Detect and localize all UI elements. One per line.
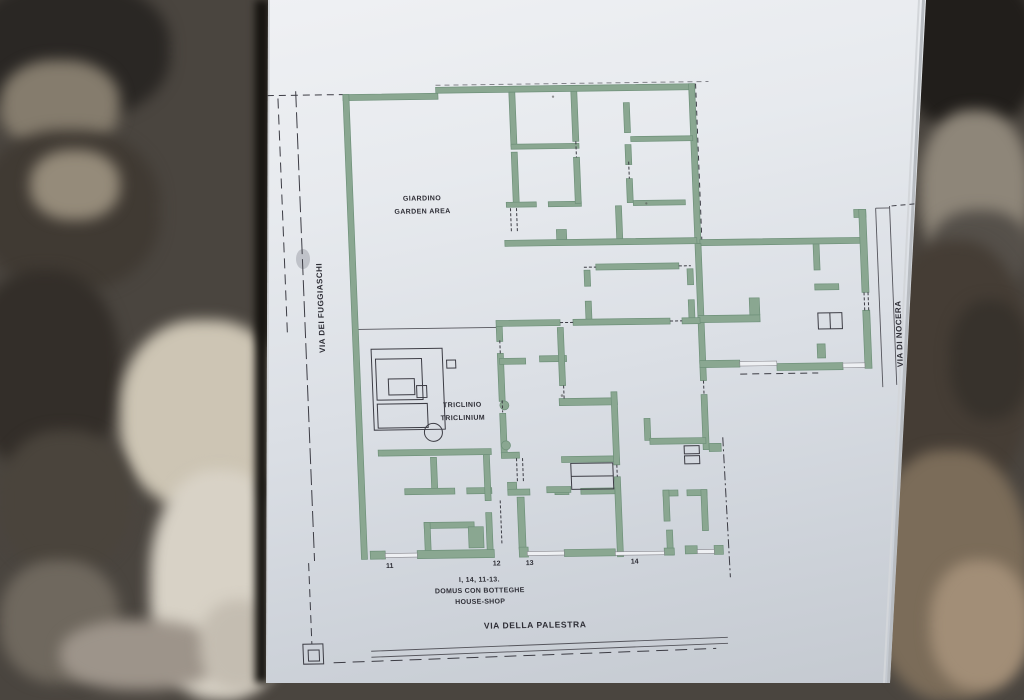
dashed-boundary-line: [516, 208, 517, 232]
wall-segment: [500, 401, 509, 410]
wall-segment: [417, 550, 494, 559]
wall-segment: [644, 418, 651, 440]
wall-segment: [633, 200, 685, 206]
wall-segment: [405, 488, 455, 495]
wall-segment: [615, 206, 622, 241]
wall-segment: [689, 84, 701, 244]
plan-detail: [371, 348, 445, 430]
caption-address: I, 14, 11-13.: [459, 576, 500, 584]
wall-segment: [571, 91, 579, 141]
wall-segment: [508, 489, 530, 495]
wall-segment: [573, 157, 581, 203]
wall-segment: [501, 452, 519, 458]
dashed-boundary-line: [267, 95, 343, 96]
dashed-boundary-line: [629, 162, 630, 179]
garden-label-italian: GIARDINO: [403, 195, 442, 203]
wall-segment: [709, 443, 721, 451]
wall-segment: [863, 310, 872, 368]
wall-segment: [611, 392, 620, 465]
wall-segment: [777, 363, 843, 371]
threshold: [697, 549, 714, 553]
garden-triclinium-structure: [371, 348, 459, 442]
plan-detail: [552, 95, 554, 97]
wall-segment: [698, 323, 706, 381]
stone-patch: [930, 560, 1024, 690]
wall-segment: [343, 95, 368, 560]
street-line: [876, 208, 883, 387]
wall-segment: [499, 358, 525, 364]
wall-segment: [596, 263, 679, 270]
stone-patch: [0, 430, 130, 570]
plan-detail: [684, 456, 699, 464]
wall-segment: [701, 490, 709, 531]
threshold: [740, 361, 777, 366]
garden-label-english: GARDEN AREA: [394, 208, 451, 216]
wall-segment: [749, 298, 760, 315]
wall-segment: [556, 229, 566, 239]
wall-segment: [564, 549, 615, 557]
plan-detail: [308, 650, 319, 661]
street-label-south: VIA DELLA PALESTRA: [484, 619, 587, 630]
wall-segment: [584, 270, 591, 286]
wall-segment: [859, 209, 869, 292]
wall-segment: [468, 527, 484, 548]
entrance-number-11: 11: [386, 563, 394, 570]
wall-segment: [698, 315, 760, 323]
wall-segment: [813, 244, 820, 270]
stone-patch: [950, 300, 1024, 420]
wall-segment: [650, 438, 706, 445]
plan-detail: [388, 379, 415, 395]
wall-segment: [695, 244, 704, 318]
wall-segment: [370, 551, 385, 559]
entrance-number-12: 12: [493, 560, 501, 567]
dashed-boundary-line: [868, 292, 869, 310]
wall-segment: [687, 269, 694, 285]
wall-segment: [486, 513, 494, 553]
wall-segment: [505, 238, 697, 247]
dashed-boundary-line: [309, 563, 312, 644]
wall-segment: [685, 546, 697, 554]
triclinium-label-italian: TRICLINIO: [443, 402, 482, 410]
plan-detail: [571, 476, 613, 477]
dashed-boundary-line: [723, 437, 731, 577]
wall-segment: [511, 143, 579, 149]
wall-segment: [496, 320, 560, 327]
wall-segment: [557, 328, 565, 386]
dashed-boundary-line: [500, 500, 502, 545]
entrance-number-13: 13: [526, 560, 534, 567]
street-label-west: VIA DEI FUGGIASCHI: [315, 263, 328, 353]
street-line: [371, 637, 728, 651]
wall-segment: [623, 103, 630, 133]
wall-segment: [496, 326, 503, 341]
threshold: [843, 363, 865, 368]
wall-segment: [509, 92, 517, 146]
stone-patch: [60, 620, 220, 690]
dashed-boundary-line: [740, 373, 818, 374]
wall-segment: [506, 202, 536, 207]
wall-segment: [424, 522, 474, 529]
caption-name-italian: DOMUS CON BOTTEGHE: [435, 587, 525, 595]
plan-detail: [561, 394, 564, 397]
wall-segment: [700, 237, 865, 245]
entrance-number-14: 14: [631, 559, 639, 566]
triclinium-label-english: TRICLINIUM: [441, 415, 486, 423]
wall-segment: [714, 545, 723, 554]
dashed-boundary-line: [864, 292, 865, 310]
dashed-boundary-line: [510, 208, 511, 233]
street-line: [358, 327, 496, 329]
threshold: [527, 551, 564, 556]
threshold: [615, 551, 664, 555]
wall-segment: [815, 284, 839, 290]
wall-segment: [378, 449, 491, 457]
wall-segment: [631, 136, 693, 142]
plan-detail: [830, 313, 831, 329]
wall-segment: [561, 456, 613, 463]
wall-segment: [664, 548, 674, 555]
wall-segment: [430, 457, 437, 491]
wall-segment: [626, 179, 633, 203]
wall-segment: [424, 522, 431, 554]
wall-segment: [343, 93, 438, 100]
wall-segment: [559, 398, 617, 406]
wall-segment: [517, 497, 526, 549]
garden-basin-circle: [424, 423, 443, 441]
dashed-boundary-line: [564, 386, 565, 399]
wall-segment: [573, 318, 670, 325]
stone-patch: [30, 150, 120, 220]
wall-segment: [614, 477, 623, 557]
wall-segment: [547, 486, 571, 492]
dashed-boundary-line: [278, 98, 287, 333]
wall-segment: [663, 490, 670, 521]
dashed-boundary-line: [296, 91, 315, 561]
dashed-boundary-line: [703, 381, 704, 395]
wall-segment: [501, 441, 510, 450]
wall-segment: [817, 344, 826, 358]
plan-detail: [684, 446, 699, 454]
plan-detail: [447, 360, 456, 368]
wall-segment: [511, 152, 519, 204]
dashed-boundary-line: [523, 458, 524, 482]
plan-detail: [417, 385, 427, 397]
wall-segment: [700, 360, 740, 368]
dashed-boundary-line: [576, 141, 577, 157]
threshold: [385, 553, 417, 557]
caption-name-english: HOUSE-SHOP: [455, 598, 505, 606]
dashed-boundary-line: [517, 458, 518, 482]
dashed-boundary-line: [500, 340, 501, 353]
plan-geometry: GIARDINO GARDEN AREA TRICLINIO TRICLINIU…: [267, 79, 937, 665]
plan-detail: [377, 403, 428, 428]
wall-segment: [682, 318, 700, 324]
